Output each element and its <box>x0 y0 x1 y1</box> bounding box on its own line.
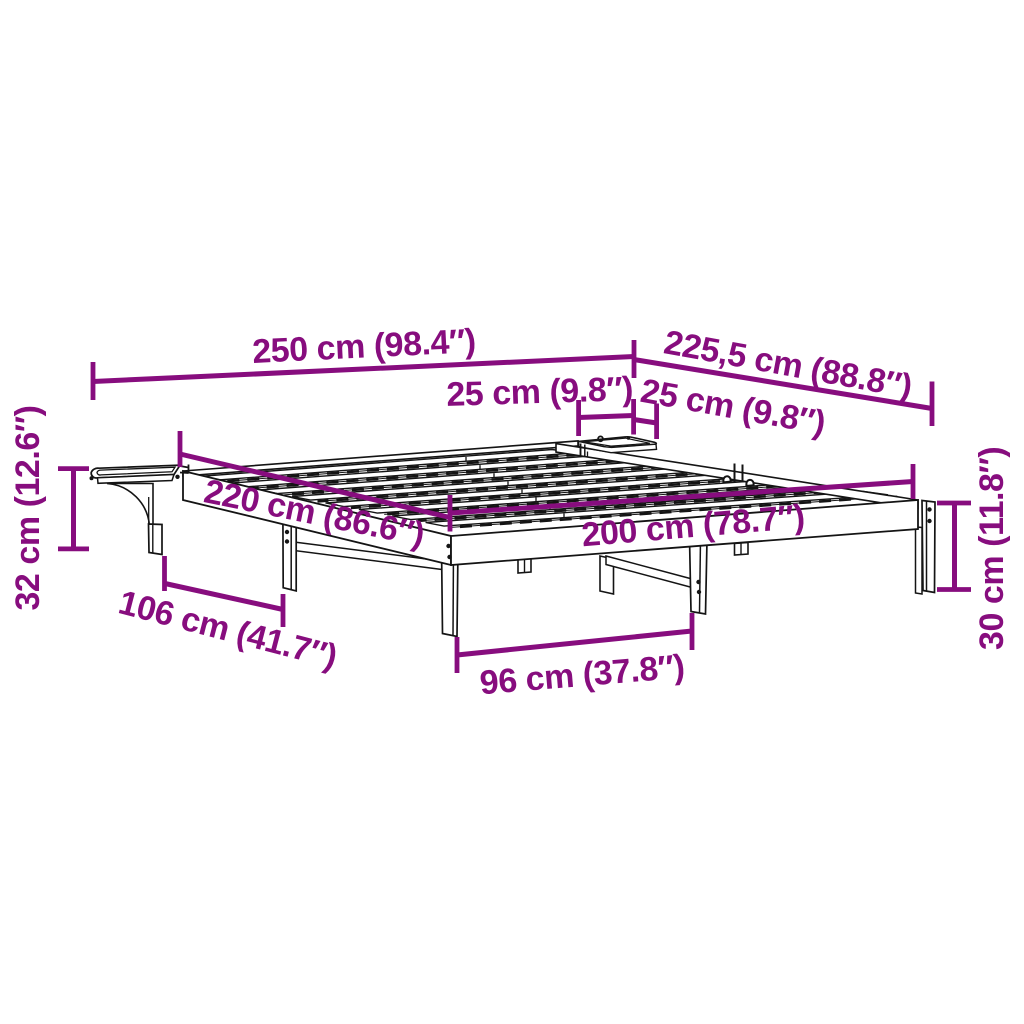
svg-text:30 cm (11.8″): 30 cm (11.8″) <box>973 447 1011 650</box>
svg-text:25 cm (9.8″): 25 cm (9.8″) <box>446 370 634 414</box>
svg-text:32 cm (12.6″): 32 cm (12.6″) <box>9 405 47 610</box>
